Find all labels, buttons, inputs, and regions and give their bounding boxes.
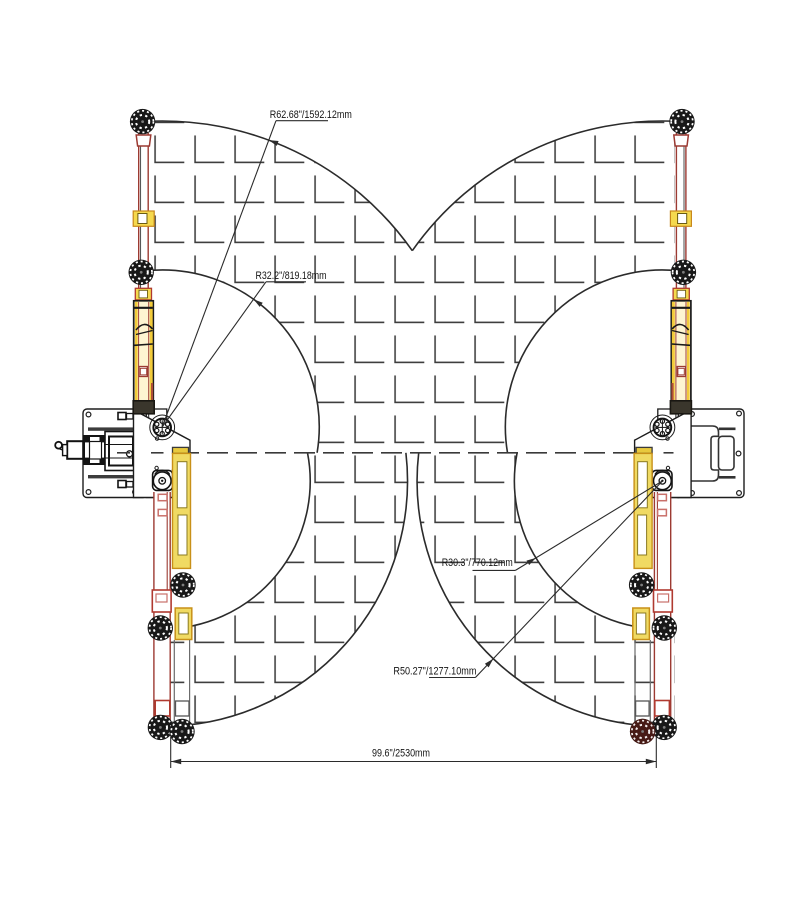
svg-text:99.6"/2530mm: 99.6"/2530mm [372, 748, 430, 760]
svg-text:R30.3"/770.12mm: R30.3"/770.12mm [442, 557, 513, 569]
svg-text:R32.2"/819.18mm: R32.2"/819.18mm [256, 270, 327, 282]
svg-text:R62.68"/1592.12mm: R62.68"/1592.12mm [270, 109, 352, 121]
svg-text:R50.27"/1277.10mm: R50.27"/1277.10mm [393, 666, 476, 678]
